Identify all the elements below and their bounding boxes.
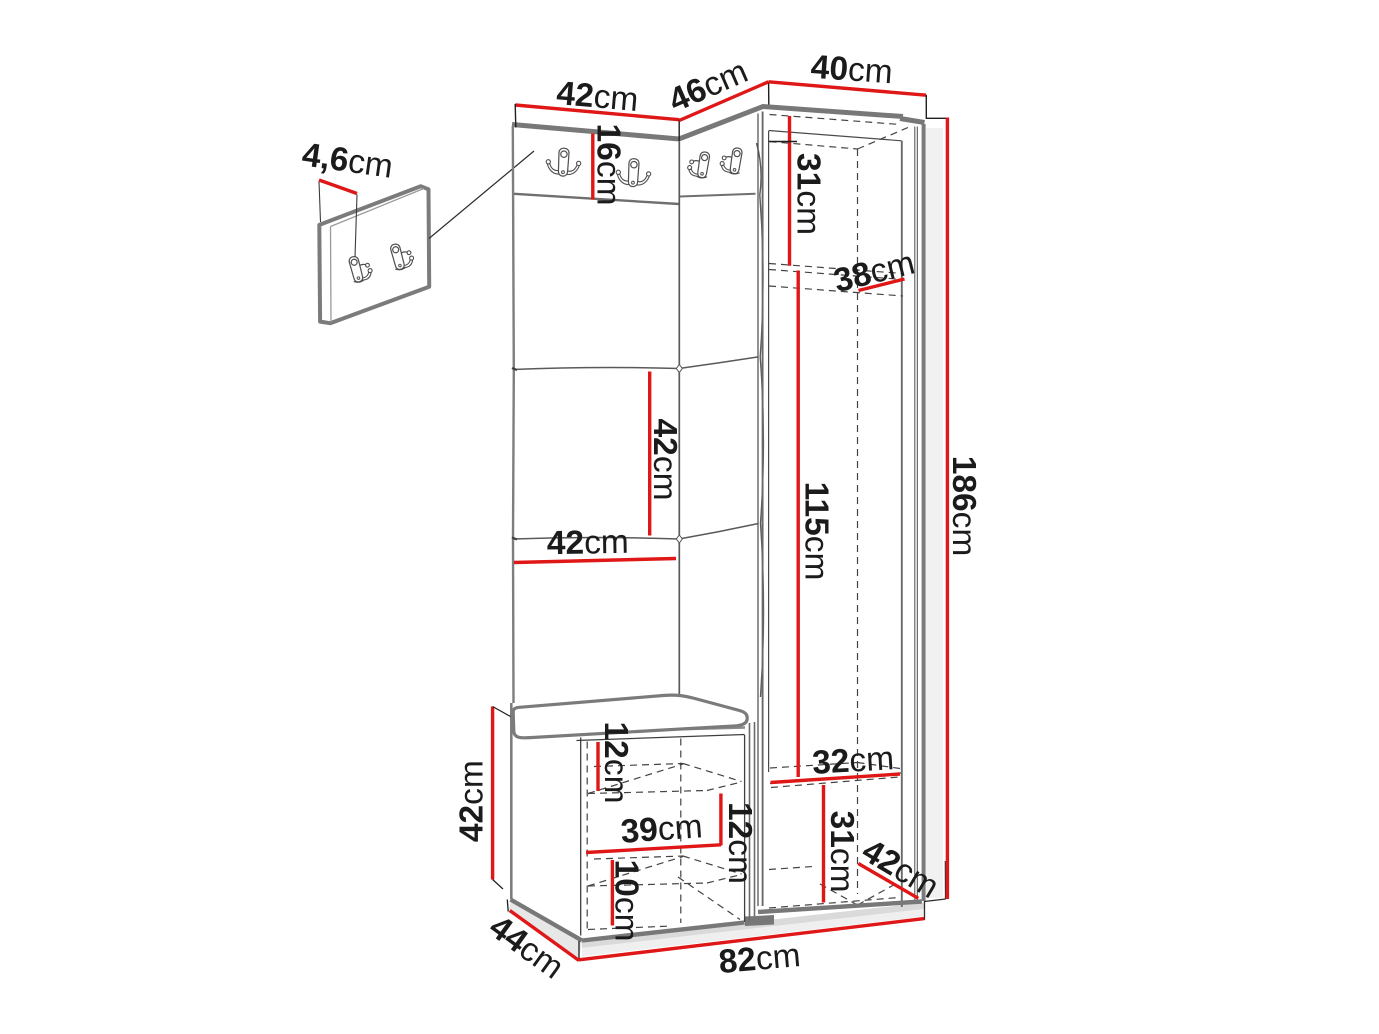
svg-text:40cm: 40cm xyxy=(810,49,894,92)
svg-text:39cm: 39cm xyxy=(619,808,703,851)
svg-text:12cm: 12cm xyxy=(597,722,634,804)
svg-text:10cm: 10cm xyxy=(607,860,644,942)
svg-text:42cm: 42cm xyxy=(547,524,630,562)
svg-text:42cm: 42cm xyxy=(646,419,683,501)
svg-text:31cm: 31cm xyxy=(789,153,826,235)
svg-text:31cm: 31cm xyxy=(823,811,860,893)
svg-text:186cm: 186cm xyxy=(945,456,982,557)
svg-text:12cm: 12cm xyxy=(721,802,758,884)
svg-text:16cm: 16cm xyxy=(590,124,627,206)
svg-text:115cm: 115cm xyxy=(798,482,835,581)
svg-text:42cm: 42cm xyxy=(453,760,490,842)
svg-text:32cm: 32cm xyxy=(811,740,895,782)
svg-text:42cm: 42cm xyxy=(555,75,640,119)
svg-text:82cm: 82cm xyxy=(717,937,802,981)
